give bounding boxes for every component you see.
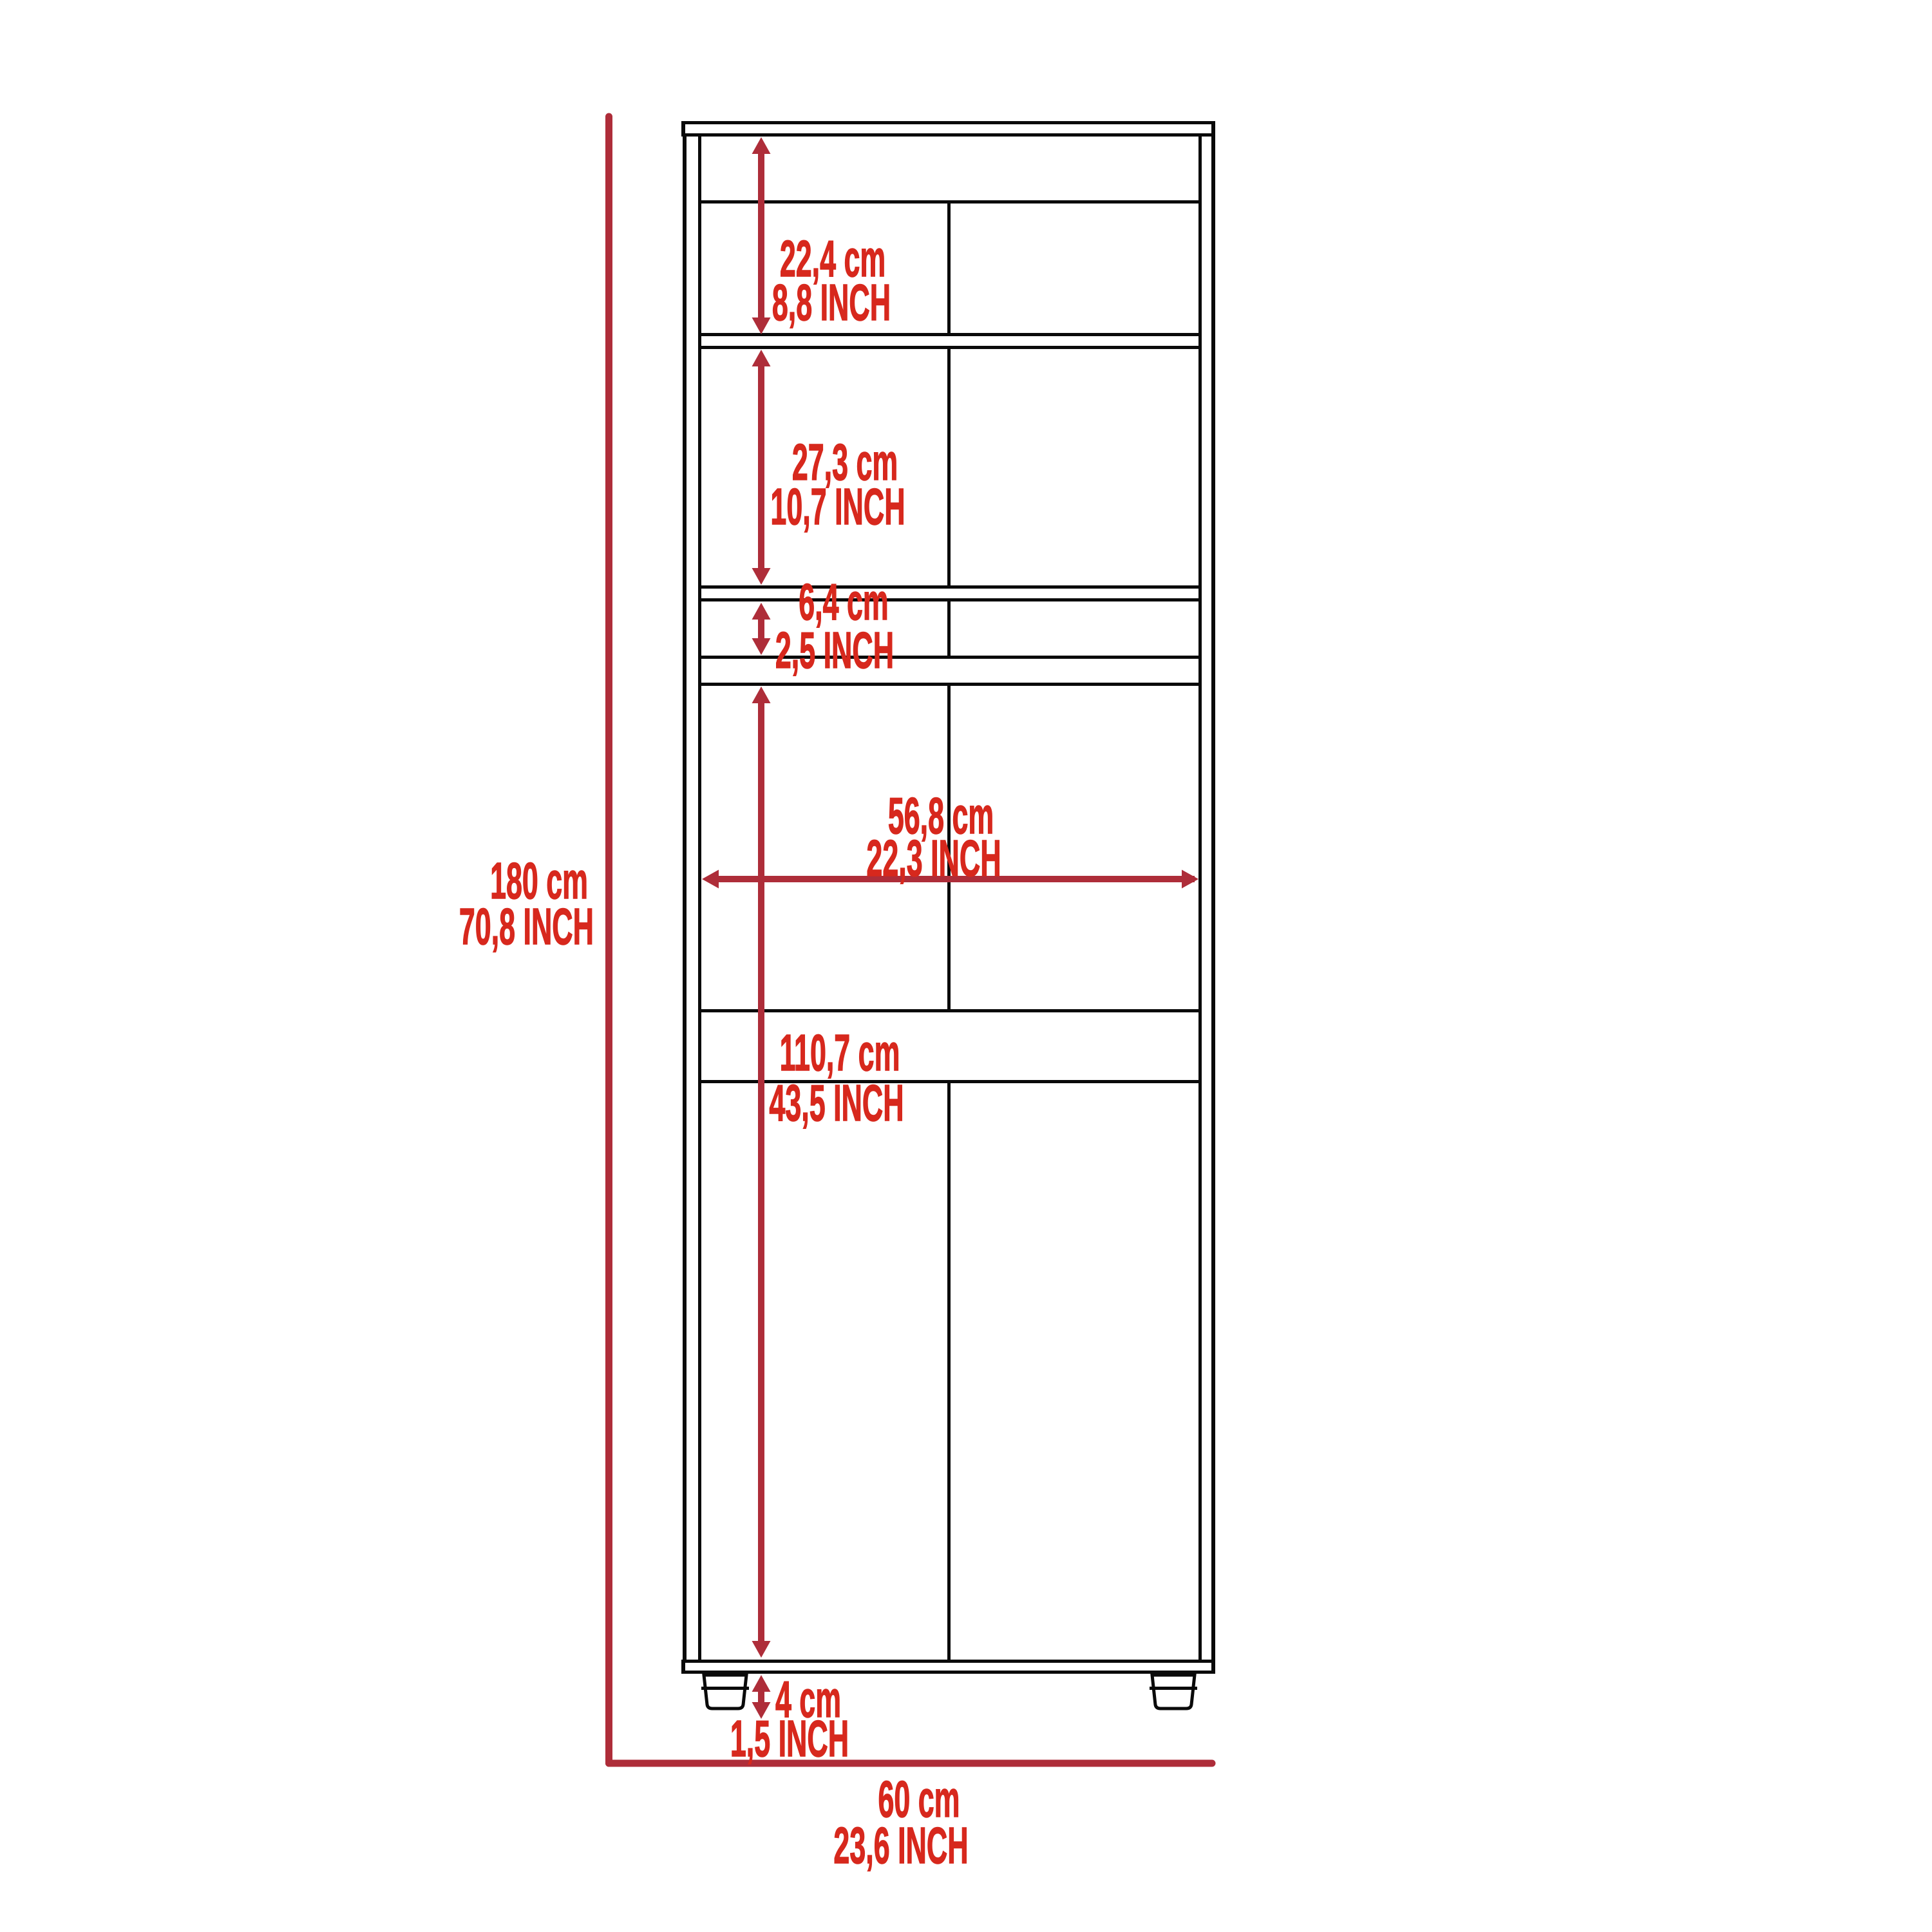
svg-text:23,6 INCH: 23,6 INCH [833,1816,968,1874]
svg-text:2,5 INCH: 2,5 INCH [775,621,894,679]
svg-text:10,7 INCH: 10,7 INCH [770,477,905,535]
svg-text:110,7 cm: 110,7 cm [780,1023,900,1081]
svg-text:8,8 INCH: 8,8 INCH [772,273,891,331]
svg-text:70,8 INCH: 70,8 INCH [459,897,594,955]
svg-text:1,5 INCH: 1,5 INCH [730,1709,849,1767]
svg-text:43,5 INCH: 43,5 INCH [769,1074,904,1132]
svg-text:22,3 INCH: 22,3 INCH [866,829,1001,887]
